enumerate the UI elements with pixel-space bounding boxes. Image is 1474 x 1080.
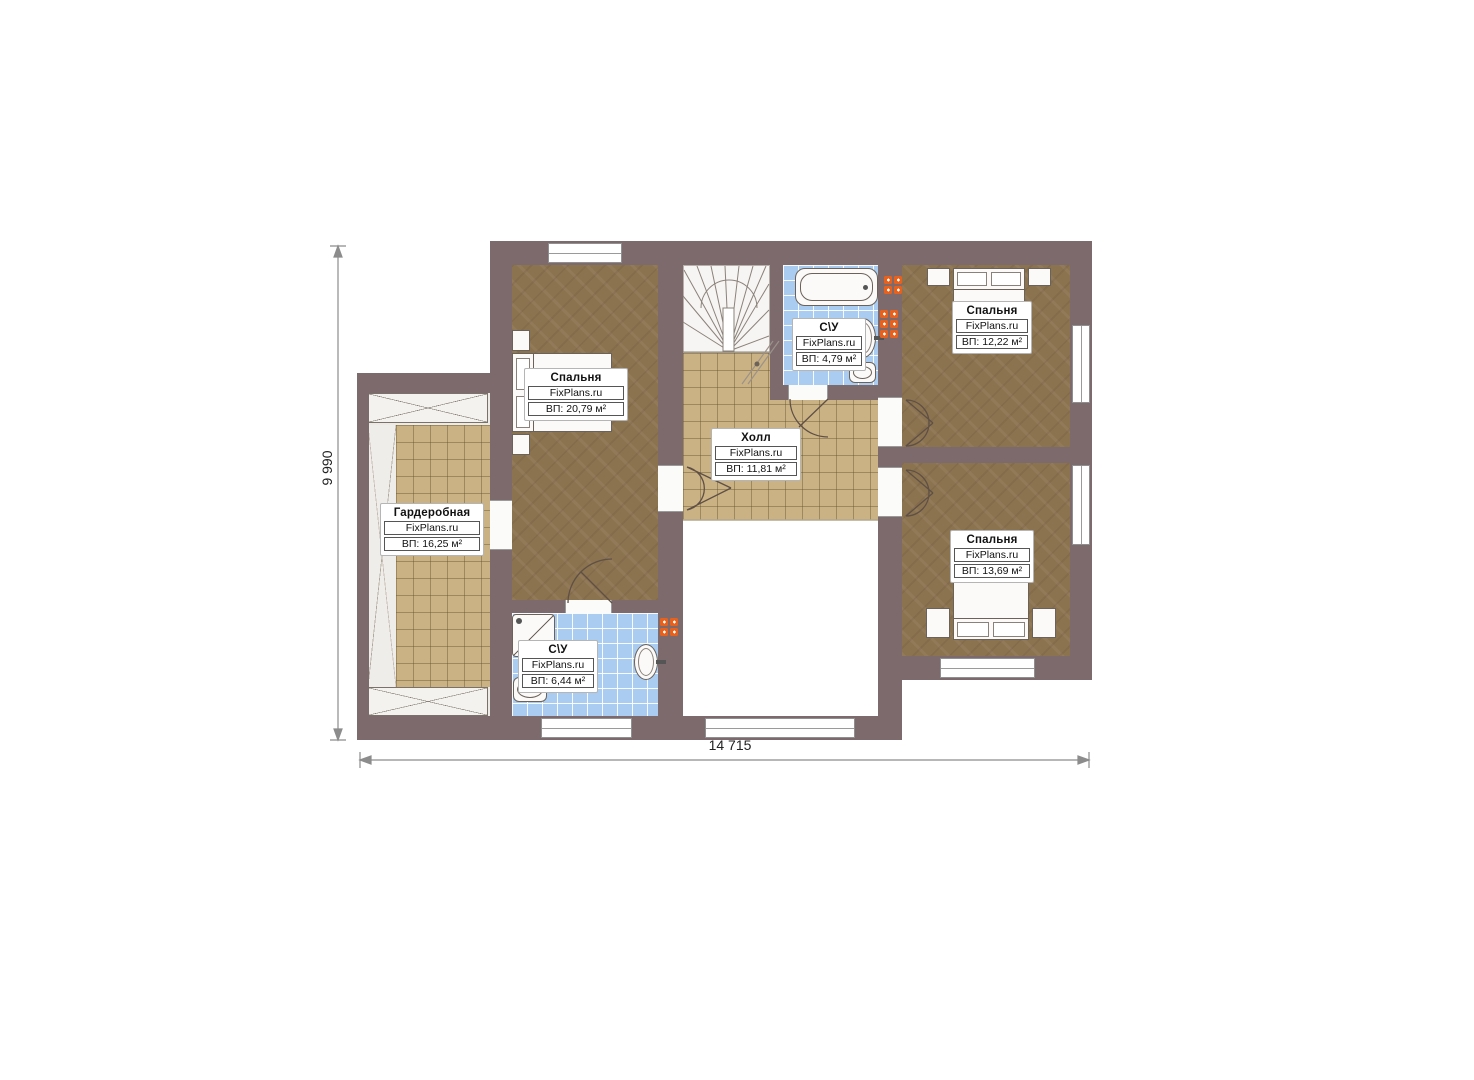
room-label-bathroom-top: С\У FixPlans.ru ВП: 4,79 м²	[792, 318, 866, 371]
pillow	[957, 622, 989, 637]
brand-watermark: FixPlans.ru	[796, 336, 862, 350]
dimension-width-label: 14 715	[680, 737, 780, 753]
wall-exterior-right	[1070, 241, 1092, 680]
room-title: Спальня	[528, 372, 624, 384]
nightstand	[926, 608, 950, 638]
room-area: ВП: 13,69 м²	[954, 564, 1030, 578]
window-bedroom-top-right	[1072, 325, 1090, 403]
radiator-cell	[660, 628, 668, 636]
room-area: ВП: 20,79 м²	[528, 402, 624, 416]
room-label-bedroom-left: Спальня FixPlans.ru ВП: 20,79 м²	[524, 368, 628, 421]
stairs-area	[683, 265, 770, 353]
wall-between-right-bedrooms	[902, 447, 1070, 463]
floor-plan-canvas: Спальня FixPlans.ru ВП: 20,79 м² Гардеро…	[0, 0, 1474, 1080]
plan-annotations	[0, 0, 1474, 1080]
brand-watermark: FixPlans.ru	[954, 548, 1030, 562]
room-label-bedroom-right: Спальня FixPlans.ru ВП: 13,69 м²	[950, 530, 1034, 583]
nightstand	[512, 434, 530, 455]
window-void-bottom	[705, 718, 855, 738]
radiator-cell	[890, 310, 898, 318]
nightstand	[1028, 268, 1051, 286]
room-label-bedroom-top-right: Спальня FixPlans.ru ВП: 12,22 м²	[952, 301, 1032, 354]
radiator-cell	[884, 276, 892, 284]
radiator-cell	[660, 618, 668, 626]
room-wardrobe-floor	[396, 425, 490, 687]
wall-annex-top	[357, 373, 512, 393]
dimension-height-label: 9 990	[319, 433, 335, 503]
radiator-cell	[894, 276, 902, 284]
radiator-cell	[890, 330, 898, 338]
bathtub	[795, 268, 878, 306]
wardrobe-closet-bottom	[368, 687, 488, 716]
wall-hall-right-3	[878, 517, 902, 740]
wall-hall-right-2	[878, 447, 902, 467]
radiator-cell	[880, 320, 888, 328]
room-title: С\У	[522, 644, 594, 656]
room-title: Холл	[715, 432, 797, 444]
wardrobe-roof-slope	[368, 425, 396, 687]
brand-watermark: FixPlans.ru	[956, 319, 1028, 333]
radiator-cell	[880, 310, 888, 318]
window-bedroom-right-side	[1072, 465, 1090, 545]
room-title: С\У	[796, 322, 862, 334]
brand-watermark: FixPlans.ru	[715, 446, 797, 460]
radiator	[884, 276, 902, 294]
wall-bedroom-hall-upper	[658, 241, 683, 465]
brand-watermark: FixPlans.ru	[528, 386, 624, 400]
wardrobe-closet-top	[368, 393, 488, 423]
wall-bath-bottom-top-left	[512, 600, 565, 613]
doorway-bedroom-top-right	[878, 397, 902, 447]
room-label-hall: Холл FixPlans.ru ВП: 11,81 м²	[711, 428, 801, 481]
brand-watermark: FixPlans.ru	[384, 521, 480, 535]
radiator-cell	[884, 286, 892, 294]
radiator-cell	[890, 320, 898, 328]
radiator-cell	[670, 618, 678, 626]
sink-bathroom-bottom	[634, 644, 658, 680]
wall-exterior-left	[490, 241, 512, 740]
room-label-bathroom-bottom: С\У FixPlans.ru ВП: 6,44 м²	[518, 640, 598, 693]
room-area: ВП: 6,44 м²	[522, 674, 594, 688]
window-bathroom-bottom	[541, 718, 632, 738]
room-title: Гардеробная	[384, 507, 480, 519]
window-bedroom-right-bottom	[940, 658, 1035, 678]
room-area: ВП: 12,22 м²	[956, 335, 1028, 349]
pillow	[957, 272, 987, 286]
wall-annex-left	[357, 373, 369, 716]
pillow	[993, 622, 1025, 637]
room-title: Спальня	[956, 305, 1028, 317]
nightstand	[512, 330, 530, 351]
room-title: Спальня	[954, 534, 1030, 546]
doorway-wardrobe	[490, 500, 512, 550]
radiator	[880, 310, 898, 338]
room-bedroom-left-floor	[512, 265, 658, 600]
pillow	[991, 272, 1021, 286]
wall-stairs-bath	[770, 265, 783, 385]
doorway-bathroom-bottom	[565, 600, 612, 613]
wall-bath-top-bottom-left	[770, 385, 788, 400]
window-bedroom-left-top	[548, 243, 622, 263]
radiator-cell	[894, 286, 902, 294]
nightstand	[927, 268, 950, 286]
nightstand	[1032, 608, 1056, 638]
room-label-wardrobe: Гардеробная FixPlans.ru ВП: 16,25 м²	[380, 503, 484, 556]
radiator-cell	[880, 330, 888, 338]
room-area: ВП: 4,79 м²	[796, 352, 862, 366]
room-area: ВП: 11,81 м²	[715, 462, 797, 476]
doorway-bedroom-left	[658, 465, 683, 512]
doorway-bathroom-top	[788, 385, 828, 400]
radiator-cell	[670, 628, 678, 636]
doorway-bedroom-right	[878, 467, 902, 517]
wall-bath-bottom-top-right	[612, 600, 660, 613]
radiator	[660, 618, 678, 636]
brand-watermark: FixPlans.ru	[522, 658, 594, 672]
room-area: ВП: 16,25 м²	[384, 537, 480, 551]
